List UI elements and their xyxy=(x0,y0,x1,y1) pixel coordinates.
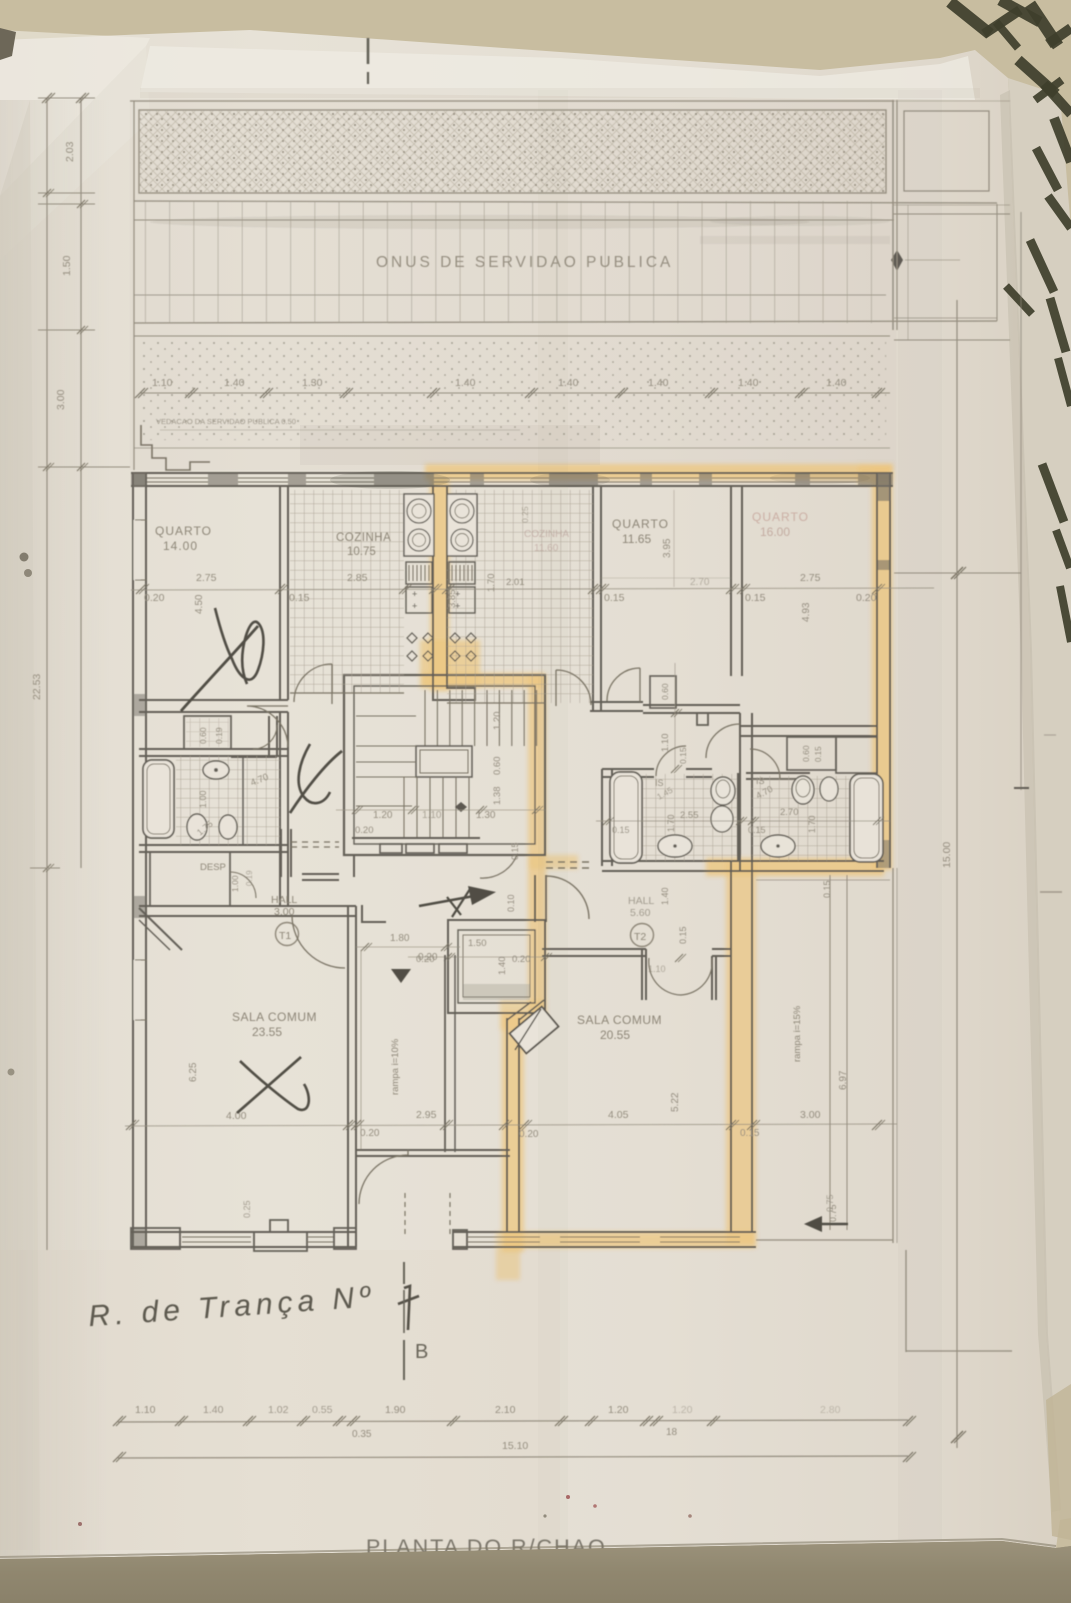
svg-text:0.60: 0.60 xyxy=(660,683,670,700)
svg-text:2.85: 2.85 xyxy=(347,572,368,584)
svg-text:1.40: 1.40 xyxy=(826,377,847,389)
svg-text:10.75: 10.75 xyxy=(347,546,376,558)
svg-text:1.40: 1.40 xyxy=(660,887,670,905)
svg-text:18: 18 xyxy=(666,1427,678,1438)
svg-text:0.15: 0.15 xyxy=(814,746,823,762)
svg-text:23.55: 23.55 xyxy=(252,1025,282,1039)
svg-text:6.97: 6.97 xyxy=(838,1070,849,1090)
svg-text:HALL: HALL xyxy=(271,894,297,906)
svg-text:0.25: 0.25 xyxy=(520,506,530,523)
svg-text:0.15: 0.15 xyxy=(748,825,766,835)
svg-text:0.20: 0.20 xyxy=(355,825,374,836)
svg-text:1.50: 1.50 xyxy=(468,938,487,949)
svg-text:0.15: 0.15 xyxy=(740,1128,760,1139)
svg-text:rampa i=10%: rampa i=10% xyxy=(390,1038,401,1095)
svg-text:+: + xyxy=(412,601,417,611)
svg-text:1.20: 1.20 xyxy=(672,1404,693,1416)
svg-text:0.15: 0.15 xyxy=(678,926,688,944)
svg-text:SALA COMUM: SALA COMUM xyxy=(232,1010,317,1024)
svg-text:0.20: 0.20 xyxy=(519,1129,539,1140)
svg-text:1.20: 1.20 xyxy=(608,1404,629,1416)
svg-text:2.70: 2.70 xyxy=(690,577,710,588)
svg-text:SALA COMUM: SALA COMUM xyxy=(577,1013,662,1027)
svg-text:1.80: 1.80 xyxy=(390,933,410,944)
svg-text:0.60: 0.60 xyxy=(492,757,503,776)
svg-text:1.20: 1.20 xyxy=(373,810,393,821)
svg-text:5.22: 5.22 xyxy=(670,1092,681,1112)
svg-text:2.75: 2.75 xyxy=(196,572,217,584)
svg-text:20.55: 20.55 xyxy=(600,1028,630,1042)
svg-text:2.75: 2.75 xyxy=(800,572,821,584)
svg-text:1.10: 1.10 xyxy=(422,810,442,821)
svg-text:6.25: 6.25 xyxy=(188,1062,199,1082)
svg-text:0.19: 0.19 xyxy=(214,727,224,744)
svg-text:0.15: 0.15 xyxy=(612,825,630,835)
svg-text:0.15: 0.15 xyxy=(745,592,766,604)
svg-text:0.20: 0.20 xyxy=(512,954,531,965)
svg-text:T1: T1 xyxy=(279,930,291,942)
svg-text:1.70: 1.70 xyxy=(486,574,497,593)
svg-text:2.55: 2.55 xyxy=(680,810,699,821)
svg-text:T2: T2 xyxy=(634,931,646,943)
svg-text:0.15: 0.15 xyxy=(604,592,625,604)
svg-text:4.00: 4.00 xyxy=(226,1110,247,1122)
svg-text:3.00: 3.00 xyxy=(800,1109,821,1121)
svg-text:0.20: 0.20 xyxy=(360,1128,380,1139)
svg-text:0.60: 0.60 xyxy=(801,745,811,762)
svg-text:QUARTO: QUARTO xyxy=(155,524,212,538)
svg-text:4.93: 4.93 xyxy=(801,602,812,622)
svg-text:1.70: 1.70 xyxy=(807,815,817,833)
svg-text:1.30: 1.30 xyxy=(302,377,323,389)
svg-text:1.10: 1.10 xyxy=(152,377,173,389)
svg-text:5.60: 5.60 xyxy=(630,907,651,919)
svg-text:0.10: 0.10 xyxy=(506,894,516,912)
svg-text:DESP: DESP xyxy=(200,862,226,873)
svg-text:3.95: 3.95 xyxy=(662,538,673,558)
svg-text:0.25: 0.25 xyxy=(242,1200,252,1218)
svg-text:HALL: HALL xyxy=(628,895,654,907)
svg-text:+: + xyxy=(412,589,417,599)
svg-text:1.10: 1.10 xyxy=(660,734,671,753)
svg-text:QUARTO: QUARTO xyxy=(612,517,669,531)
svg-text:4.05: 4.05 xyxy=(608,1109,629,1121)
svg-text:0.15: 0.15 xyxy=(510,842,520,860)
svg-text:1.40: 1.40 xyxy=(224,377,245,389)
svg-text:rampa i=15%: rampa i=15% xyxy=(792,1005,803,1062)
svg-text:0.60: 0.60 xyxy=(198,727,208,744)
svg-text:2.95: 2.95 xyxy=(416,1109,437,1121)
svg-text:IS: IS xyxy=(756,776,765,786)
svg-text:0.15: 0.15 xyxy=(678,747,688,764)
svg-text:0.15: 0.15 xyxy=(289,592,310,604)
svg-text:IS: IS xyxy=(655,778,664,788)
svg-text:0.20: 0.20 xyxy=(144,592,165,604)
svg-text:11.65: 11.65 xyxy=(622,532,651,546)
svg-text:0.20: 0.20 xyxy=(418,952,438,963)
svg-text:15.00: 15.00 xyxy=(941,842,953,868)
svg-text:COZINHA: COZINHA xyxy=(336,532,391,544)
svg-text:2.70: 2.70 xyxy=(780,807,799,818)
svg-text:1.00: 1.00 xyxy=(230,875,240,892)
svg-text:1.40: 1.40 xyxy=(455,377,476,389)
svg-text:1.20: 1.20 xyxy=(492,712,503,731)
svg-text:4.50: 4.50 xyxy=(194,594,205,614)
svg-text:16.00: 16.00 xyxy=(760,525,790,539)
svg-text:3.85: 3.85 xyxy=(447,590,458,609)
svg-text:2.01: 2.01 xyxy=(506,577,525,588)
svg-text:0.75: 0.75 xyxy=(825,1194,835,1212)
svg-text:0.20: 0.20 xyxy=(856,592,877,604)
svg-text:1.40: 1.40 xyxy=(648,377,669,389)
svg-text:1.40: 1.40 xyxy=(738,377,759,389)
svg-text:1.00: 1.00 xyxy=(198,790,208,808)
svg-text:QUARTO: QUARTO xyxy=(752,510,809,524)
svg-text:ONUS DE SERVIDAO PUBLICA: ONUS DE SERVIDAO PUBLICA xyxy=(376,254,673,271)
svg-text:1.70: 1.70 xyxy=(666,814,676,832)
svg-text:VEDACAO DA SERVIDAO PUBLICA 0.: VEDACAO DA SERVIDAO PUBLICA 0.50 xyxy=(156,417,296,426)
svg-text:1.38: 1.38 xyxy=(492,787,503,806)
svg-text:1.40: 1.40 xyxy=(497,957,508,976)
svg-text:2.80: 2.80 xyxy=(820,1404,841,1416)
svg-text:14.00: 14.00 xyxy=(163,539,198,553)
